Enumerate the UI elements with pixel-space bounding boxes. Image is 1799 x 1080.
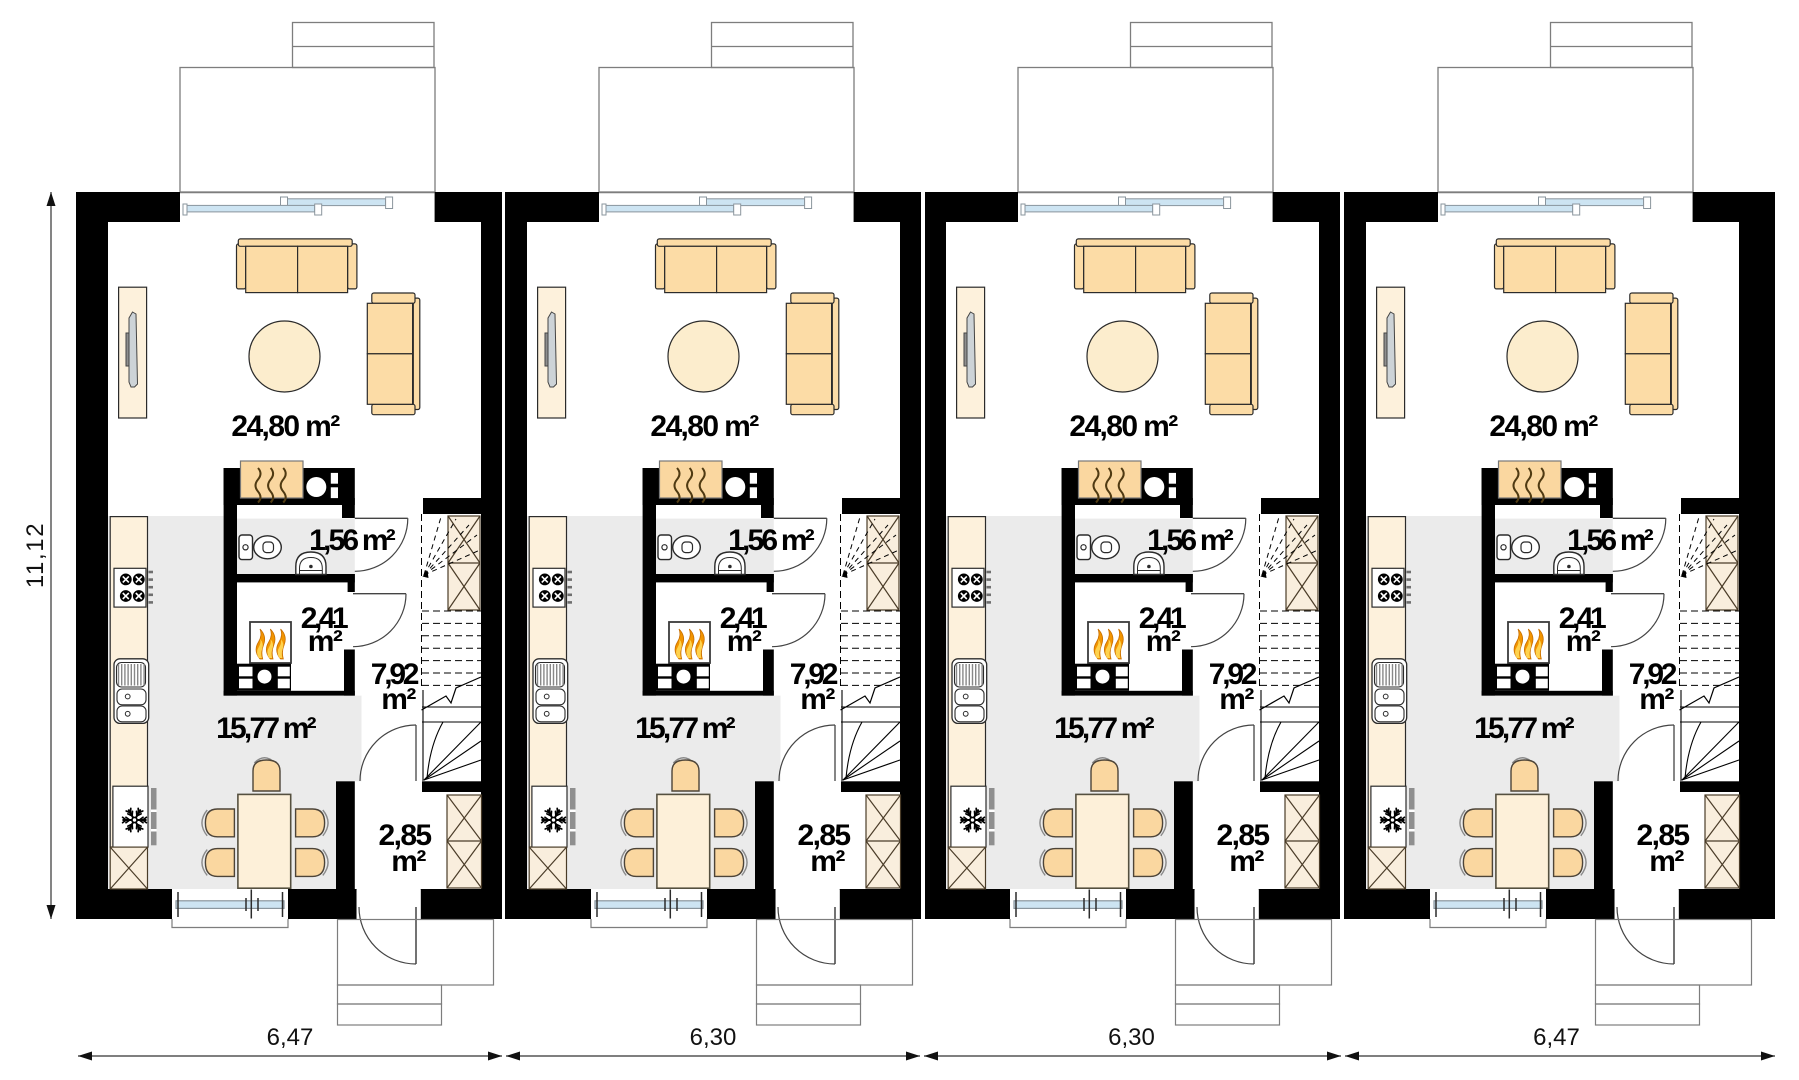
svg-text:24,80 m²: 24,80 m² [231,410,340,443]
svg-text:m²: m² [1146,625,1181,658]
svg-text:24,80 m²: 24,80 m² [1489,410,1598,443]
svg-text:m²: m² [391,845,426,878]
svg-text:m²: m² [1219,683,1254,716]
svg-text:24,80 m²: 24,80 m² [650,410,759,443]
svg-text:11,12: 11,12 [22,522,49,588]
svg-text:15,77 m²: 15,77 m² [635,712,735,745]
svg-text:6,47: 6,47 [1533,1024,1580,1051]
svg-text:m²: m² [810,845,845,878]
svg-text:15,77 m²: 15,77 m² [1054,712,1154,745]
svg-text:m²: m² [1229,845,1264,878]
svg-text:24,80 m²: 24,80 m² [1069,410,1178,443]
svg-text:6,30: 6,30 [1108,1024,1155,1051]
svg-text:m²: m² [1566,625,1601,658]
svg-text:m²: m² [800,683,835,716]
svg-text:m²: m² [1639,683,1674,716]
svg-text:m²: m² [381,683,416,716]
svg-text:m²: m² [1649,845,1684,878]
svg-text:m²: m² [308,625,343,658]
svg-text:m²: m² [727,625,762,658]
svg-text:1,56 m²: 1,56 m² [728,524,815,557]
svg-text:6,30: 6,30 [690,1024,737,1051]
svg-text:15,77 m²: 15,77 m² [1474,712,1574,745]
svg-text:6,47: 6,47 [267,1024,314,1051]
svg-text:15,77 m²: 15,77 m² [216,712,316,745]
svg-text:1,56 m²: 1,56 m² [309,524,396,557]
svg-text:1,56 m²: 1,56 m² [1147,524,1234,557]
svg-text:1,56 m²: 1,56 m² [1567,524,1654,557]
